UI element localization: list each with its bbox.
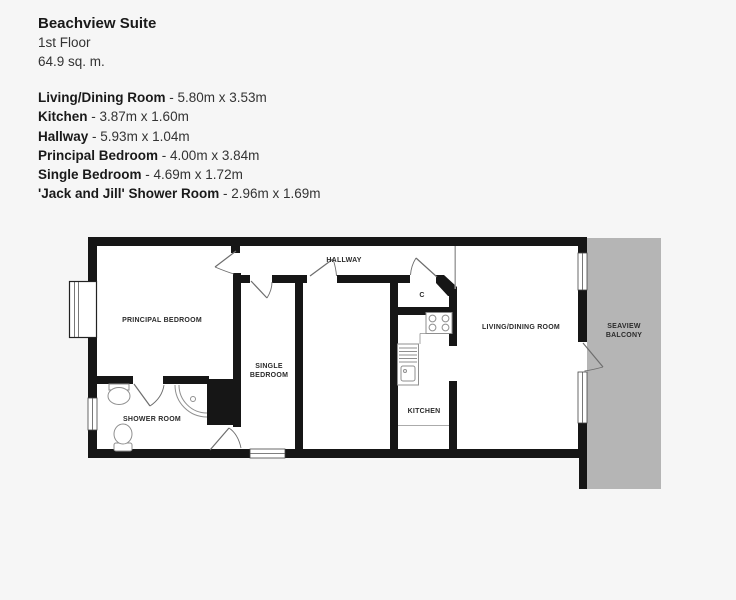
wall-left — [88, 237, 97, 282]
header: Beachview Suite 1st Floor 64.9 sq. m. — [38, 14, 156, 71]
room-row: Principal Bedroom - 4.00m x 3.84m — [38, 146, 321, 165]
room-dims: - 4.00m x 3.84m — [162, 148, 260, 163]
wall-top — [88, 237, 587, 246]
wall-shower-top — [163, 376, 209, 384]
label-single-bedroom: SINGLE — [255, 363, 283, 370]
wall-hallway — [233, 275, 250, 283]
room-name: Living/Dining Room — [38, 90, 166, 105]
balcony-area — [587, 238, 661, 489]
label-balcony: SEAVIEW — [607, 323, 641, 330]
page-title: Beachview Suite — [38, 14, 156, 33]
room-name: Single Bedroom — [38, 167, 142, 182]
label-cupboard: C — [419, 292, 424, 299]
room-dims: - 3.87m x 1.60m — [91, 109, 189, 124]
divider-line — [455, 246, 456, 289]
room-name: Kitchen — [38, 109, 88, 124]
unit-interior — [88, 237, 587, 458]
sink-bowl-icon — [401, 366, 415, 381]
shower-block — [207, 379, 240, 425]
label-shower-room: SHOWER ROOM — [123, 416, 181, 423]
wall-hallway — [337, 275, 410, 283]
room-name: Hallway — [38, 129, 88, 144]
wall-right — [578, 423, 587, 453]
wall-single-right — [295, 277, 303, 452]
floorplan-drawing: PRINCIPAL BEDROOM SINGLE BEDROOM SHOWER … — [60, 230, 680, 496]
wall-kitchen-left — [390, 275, 398, 449]
balcony — [587, 238, 661, 489]
wall-bottom — [88, 449, 250, 458]
window-principal-bedroom — [70, 282, 97, 338]
room-name: 'Jack and Jill' Shower Room — [38, 186, 219, 201]
room-dims: - 5.80m x 3.53m — [169, 90, 267, 105]
label-hallway: HALLWAY — [326, 257, 361, 264]
room-row: Living/Dining Room - 5.80m x 3.53m — [38, 88, 321, 107]
wall-balcony-side — [579, 453, 587, 489]
wall-bottom — [285, 449, 587, 458]
room-dims: - 4.69m x 1.72m — [145, 167, 243, 182]
wall-right — [578, 237, 587, 253]
label-principal-bedroom: PRINCIPAL BEDROOM — [122, 317, 202, 324]
room-row: Hallway - 5.93m x 1.04m — [38, 127, 321, 146]
room-dims: - 5.93m x 1.04m — [92, 129, 190, 144]
room-name: Principal Bedroom — [38, 148, 158, 163]
floor-label: 1st Floor — [38, 33, 156, 52]
label-kitchen: KITCHEN — [408, 408, 441, 415]
room-dimension-list: Living/Dining Room - 5.80m x 3.53m Kitch… — [38, 88, 321, 204]
room-row: Single Bedroom - 4.69m x 1.72m — [38, 165, 321, 184]
room-row: Kitchen - 3.87m x 1.60m — [38, 107, 321, 126]
wall-kitchen-right — [449, 381, 457, 449]
area-label: 64.9 sq. m. — [38, 52, 156, 71]
label-balcony: BALCONY — [606, 332, 642, 339]
wall-shower-top — [97, 376, 133, 384]
wall-left — [88, 337, 97, 398]
label-living-dining: LIVING/DINING ROOM — [482, 324, 560, 331]
label-single-bedroom: BEDROOM — [250, 372, 288, 379]
floorplan-svg: PRINCIPAL BEDROOM SINGLE BEDROOM SHOWER … — [60, 230, 680, 496]
room-row: 'Jack and Jill' Shower Room - 2.96m x 1.… — [38, 184, 321, 203]
toilet-icon — [114, 424, 132, 444]
floorplan-page: Beachview Suite 1st Floor 64.9 sq. m. Li… — [0, 0, 736, 600]
wall-right — [578, 290, 587, 342]
basin-icon — [108, 388, 130, 405]
room-dims: - 2.96m x 1.69m — [223, 186, 321, 201]
